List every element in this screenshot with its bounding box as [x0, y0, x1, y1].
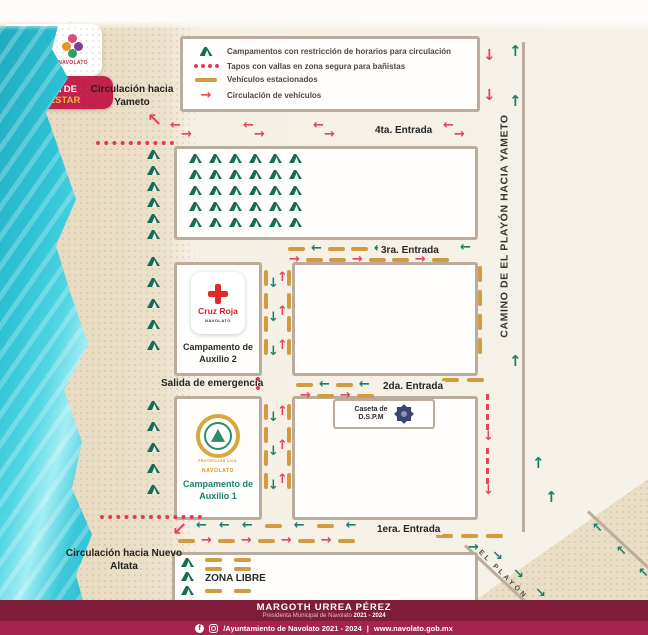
legend-label: Circulación de vehículos: [227, 91, 321, 100]
parking-dash: [264, 427, 268, 443]
legend-label: Vehículos estacionados: [227, 75, 318, 84]
red-cross-icon: [208, 284, 228, 304]
parking-dash: [258, 539, 275, 543]
tent-icon: [189, 185, 202, 196]
up-arrow-icon: [545, 490, 558, 505]
right-arrow-icon: [300, 389, 311, 402]
tent-icon: [147, 256, 160, 267]
police-badge-icon: [394, 404, 414, 424]
tent-icon: [209, 185, 222, 196]
parking-dash: [317, 394, 334, 398]
legend-label: Campamentos con restricción de horarios …: [227, 47, 451, 56]
legend: Campamentos con restricción de horarios …: [180, 36, 480, 112]
up-arrow-icon: [509, 94, 522, 109]
up-left-arrow-icon: [638, 567, 648, 580]
tent-icon: [209, 217, 222, 228]
camping-block: [174, 146, 478, 240]
tent-icon: [189, 153, 202, 164]
tent-column: [147, 256, 160, 351]
parking-dash: [478, 290, 482, 306]
tent-icon: [189, 217, 202, 228]
tent-icon: [189, 201, 202, 212]
parking-dashes: [436, 534, 503, 538]
caseta-label-line2: D.S.P.M: [354, 414, 387, 422]
cruz-roja-title: Cruz Roja: [198, 306, 238, 316]
footer-top-band: MARGOTH URREA PÉREZ Presidenta Municipal…: [0, 600, 648, 621]
proteccion-civil-logo: [196, 414, 240, 458]
tent-icon: [229, 185, 242, 196]
right-arrow-icon: [352, 253, 363, 266]
tent-icon: [147, 149, 160, 160]
parking-dash: [298, 539, 315, 543]
parking-dash: [478, 266, 482, 282]
cruz-roja-subtitle: NAVOLATO: [205, 318, 231, 323]
entrada3-label: 3ra. Entrada: [378, 245, 442, 256]
tent-icon: [209, 169, 222, 180]
parking-dash: [392, 258, 409, 262]
zona-libre-label: ZONA LIBRE: [205, 573, 266, 584]
cruz-roja-logo: Cruz Roja NAVOLATO: [191, 272, 245, 334]
caseta-label-line1: Caseta de: [354, 406, 387, 414]
caseta-box: Caseta de D.S.P.M: [333, 399, 435, 429]
tent-icon: [269, 217, 282, 228]
parking-dashes: [205, 567, 251, 571]
two-way-arrows: [243, 119, 279, 141]
footer-bottom-band: /Ayuntamiento de Navolato 2021 - 2024 | …: [0, 621, 648, 635]
left-arrow-icon: [219, 519, 230, 532]
footer-divider: |: [367, 624, 369, 633]
tent-icon: [229, 201, 242, 212]
tent-icon: [147, 400, 160, 411]
up-arrow-icon: [277, 305, 288, 318]
tent-icon: [147, 229, 160, 240]
left-arrow-icon: [443, 119, 454, 132]
entrada2-label: 2da. Entrada: [380, 381, 446, 392]
down-arrow-icon: [483, 484, 494, 497]
parking-traffic-row: [300, 389, 374, 402]
right-arrow-icon: [254, 128, 265, 141]
parking-dash: [296, 383, 313, 387]
right-arrow-icon: [454, 128, 465, 141]
tent-icon: [229, 217, 242, 228]
tent-icon: [249, 185, 262, 196]
parking-dash: [478, 338, 482, 354]
parking-dash: [178, 539, 195, 543]
camp1-label: Campamento de Auxilio 1: [182, 479, 254, 502]
tent-icon: [209, 201, 222, 212]
tent-icon: [269, 185, 282, 196]
right-arrow-icon: [324, 128, 335, 141]
left-arrow-icon: [313, 119, 324, 132]
entrada1-label: 1era. Entrada: [374, 524, 443, 535]
barrier-dots: [96, 141, 174, 145]
left-arrow-icon: [294, 519, 305, 532]
entrada4-label: 4ta. Entrada: [372, 125, 435, 136]
road-edge-right: [522, 42, 525, 532]
legend-item-circulacion: Circulación de vehículos: [193, 89, 467, 102]
salida-emergencia-label: Salida de emergencia: [161, 378, 263, 389]
tent-icon: [147, 340, 160, 351]
tent-grid: [189, 153, 315, 228]
right-arrow-icon: [201, 534, 212, 547]
red-dashed-line: [486, 394, 489, 430]
parking-dash: [329, 258, 346, 262]
parking-dashes: [442, 378, 484, 382]
tent-icon: [147, 213, 160, 224]
tent-icon: [181, 585, 194, 596]
two-way-arrows: [170, 119, 206, 141]
parking-dash: [432, 258, 449, 262]
legend-label: Tapos con vallas en zona segura para bañ…: [227, 62, 405, 71]
parking-dash: [317, 524, 334, 528]
tent-icon: [147, 442, 160, 453]
right-arrow-icon: [289, 253, 300, 266]
parking-block-upper: [292, 262, 478, 376]
tent-icon: [147, 197, 160, 208]
tent-column: [147, 400, 160, 495]
down-arrow-icon: [483, 48, 496, 63]
facebook-icon: [195, 624, 204, 633]
tent-column: [147, 149, 160, 240]
up-arrow-icon: [509, 354, 522, 369]
parking-dash: [338, 539, 355, 543]
left-arrow-icon: [243, 119, 254, 132]
left-arrow-icon: [170, 119, 181, 132]
tent-icon: [289, 185, 302, 196]
circulacion-yameto-label: Circulación hacia Yameto: [76, 84, 188, 109]
footer-social-handle: /Ayuntamiento de Navolato 2021 - 2024: [223, 624, 362, 633]
camp1-block: PROTECCIÓN CIVIL NAVOLATO Campamento de …: [174, 396, 262, 520]
camino-playon-label: CAMINO DE EL PLAYÓN HACIA YAMETO: [499, 74, 511, 379]
tent-icon: [209, 153, 222, 164]
parking-dash: [218, 539, 235, 543]
down-arrow-icon: [483, 430, 494, 443]
tent-icon: [269, 153, 282, 164]
parking-traffic-row: [196, 519, 357, 532]
left-arrow-icon: [346, 519, 357, 532]
parking-dash: [486, 534, 503, 538]
tent-icon: [200, 46, 213, 57]
right-arrow-icon: [321, 534, 332, 547]
left-arrow-icon: [196, 519, 207, 532]
tent-icon: [289, 201, 302, 212]
tan-dash-icon: [195, 78, 217, 82]
parking-dash-column: [478, 266, 482, 354]
footer-subtitle: Presidenta Municipal de Navolato 2021 - …: [262, 613, 385, 619]
camp2-block: Cruz Roja NAVOLATO Campamento de Auxilio…: [174, 262, 262, 376]
tent-icon: [269, 169, 282, 180]
up-arrow-icon: [277, 339, 288, 352]
tent-icon: [229, 169, 242, 180]
tent-icon: [147, 165, 160, 176]
left-arrow-icon: [242, 519, 253, 532]
up-arrow-icon: [277, 473, 288, 486]
tent-icon: [229, 153, 242, 164]
croquis-poster: Croquis de acceso al Tambor NAVOLATO # N…: [0, 0, 648, 635]
tent-icon: [249, 201, 262, 212]
parking-dash: [336, 383, 353, 387]
tent-icon: [249, 153, 262, 164]
circulacion-nuevo-altata-label: Circulación hacia Nuevo Altata: [60, 548, 188, 573]
tent-icon: [189, 169, 202, 180]
parking-dash: [467, 378, 484, 382]
legend-item-tapos: Tapos con vallas en zona segura para bañ…: [193, 62, 467, 71]
parking-dashes: [205, 589, 251, 593]
tent-icon: [289, 169, 302, 180]
parking-block-lower: Caseta de D.S.P.M: [292, 396, 478, 520]
proteccion-civil-subtitle: NAVOLATO: [202, 468, 234, 474]
tent-icon: [147, 484, 160, 495]
parking-dash: [328, 247, 345, 251]
tent-icon: [269, 201, 282, 212]
red-arrow-icon: [201, 89, 212, 102]
parking-dash: [265, 524, 282, 528]
up-arrow-icon: [277, 271, 288, 284]
up-arrow-icon: [509, 44, 522, 59]
parking-dash: [369, 258, 386, 262]
up-left-arrow-icon: [147, 112, 162, 130]
tent-icon: [147, 181, 160, 192]
tent-icon: [147, 298, 160, 309]
parking-dash: [288, 247, 305, 251]
up-arrow-icon: [277, 439, 288, 452]
header-band: [0, 0, 648, 30]
right-arrow-icon: [340, 389, 351, 402]
parking-dashes: [205, 558, 251, 562]
parking-dash: [357, 394, 374, 398]
down-arrow-icon: [483, 88, 496, 103]
down-right-arrow-icon: [513, 568, 524, 581]
tent-icon: [289, 153, 302, 164]
right-arrow-icon: [281, 534, 292, 547]
down-right-arrow-icon: [535, 587, 546, 600]
camp2-label: Campamento de Auxilio 2: [182, 342, 254, 365]
tent-icon: [147, 319, 160, 330]
up-left-arrow-icon: [616, 545, 627, 558]
two-way-arrows: [443, 119, 479, 141]
proteccion-civil-title: PROTECCIÓN CIVIL: [198, 459, 238, 463]
footer: MARGOTH URREA PÉREZ Presidenta Municipal…: [0, 600, 648, 635]
legend-item-campamentos: Campamentos con restricción de horarios …: [193, 46, 467, 57]
red-dotted-line-icon: [194, 64, 219, 68]
legend-item-estacionados: Vehículos estacionados: [193, 75, 467, 84]
parking-dash: [478, 314, 482, 330]
tent-icon: [147, 421, 160, 432]
up-arrow-icon: [532, 456, 545, 471]
tent-icon: [249, 217, 262, 228]
tent-icon: [289, 217, 302, 228]
instagram-icon: [209, 624, 218, 633]
parking-dash: [306, 258, 323, 262]
right-arrow-icon: [181, 128, 192, 141]
tent-icon: [249, 169, 262, 180]
parking-dash: [351, 247, 368, 251]
footer-website: www.navolato.gob.mx: [374, 624, 453, 633]
parking-dash: [461, 534, 478, 538]
tent-icon: [147, 277, 160, 288]
left-arrow-icon: [460, 241, 471, 254]
red-dashed-line: [486, 448, 489, 484]
parking-dash: [264, 293, 268, 309]
footer-name: MARGOTH URREA PÉREZ: [257, 602, 392, 613]
two-way-arrows: [313, 119, 349, 141]
right-arrow-icon: [241, 534, 252, 547]
tent-icon: [147, 463, 160, 474]
up-left-arrow-icon: [592, 522, 603, 535]
up-arrow-icon: [277, 405, 288, 418]
parking-traffic-row: [178, 534, 355, 547]
